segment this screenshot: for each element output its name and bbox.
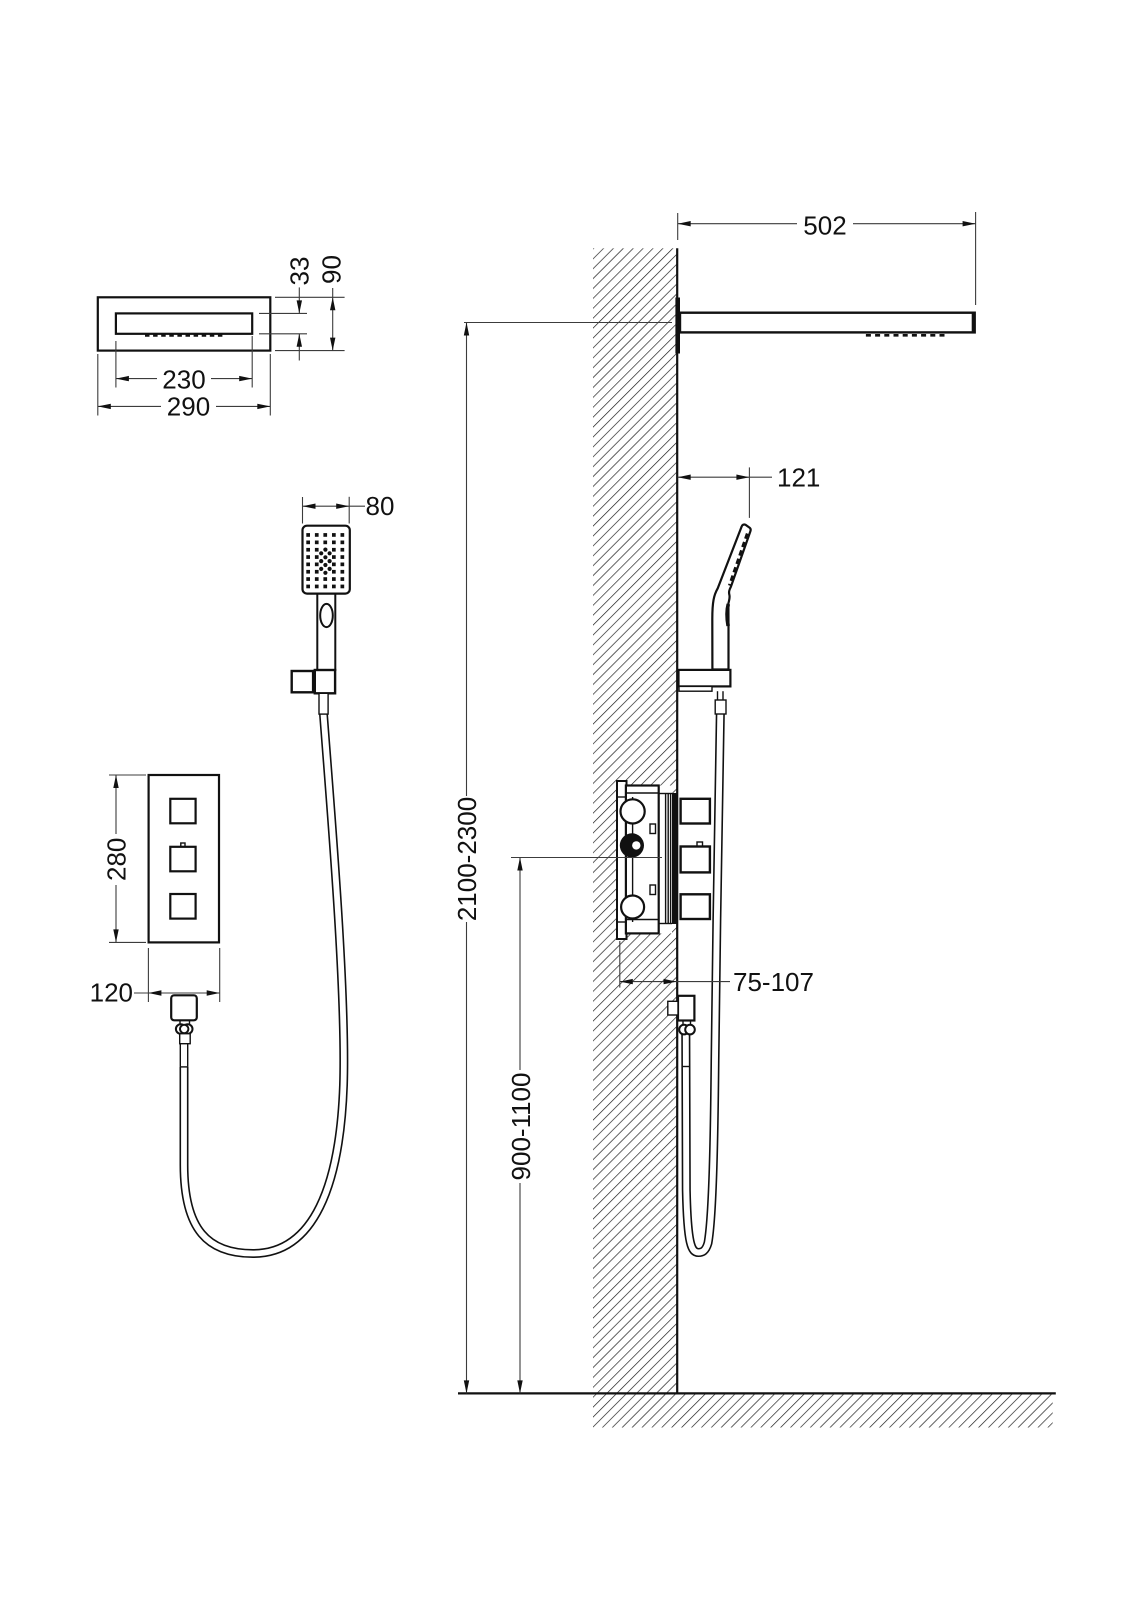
svg-text:80: 80 xyxy=(366,491,395,521)
svg-text:290: 290 xyxy=(167,392,210,422)
svg-text:33: 33 xyxy=(285,257,315,286)
svg-text:280: 280 xyxy=(102,838,132,881)
svg-text:121: 121 xyxy=(777,463,820,493)
svg-text:120: 120 xyxy=(90,977,133,1007)
svg-text:230: 230 xyxy=(162,365,205,395)
svg-text:900-1100: 900-1100 xyxy=(506,1073,536,1181)
svg-text:2100-2300: 2100-2300 xyxy=(452,797,482,921)
svg-text:75-107: 75-107 xyxy=(733,967,814,997)
svg-text:502: 502 xyxy=(803,211,846,241)
svg-text:90: 90 xyxy=(317,255,347,284)
